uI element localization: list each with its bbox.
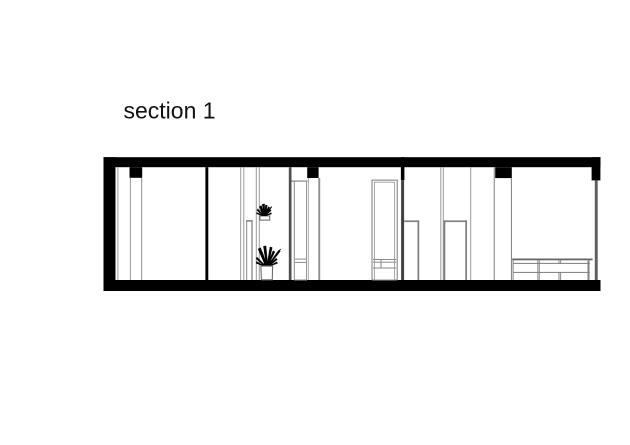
svg-text:section 1: section 1 <box>124 98 216 124</box>
